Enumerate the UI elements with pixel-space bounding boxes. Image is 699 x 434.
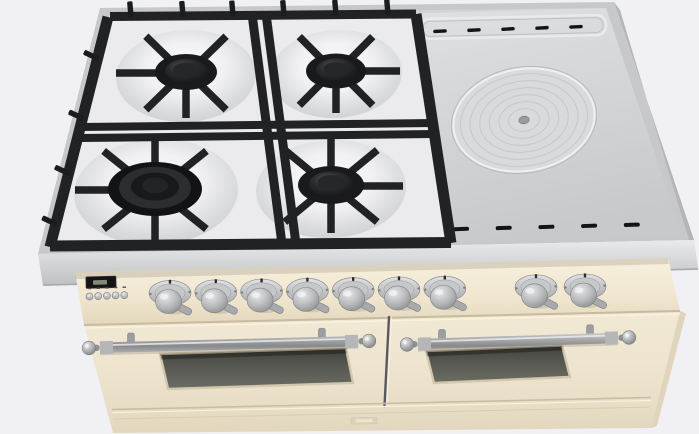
handle-ball-finial: [622, 331, 636, 345]
vent-slot: [496, 226, 512, 231]
handle-ball-finial: [82, 341, 96, 355]
right-oven-window: [426, 346, 570, 384]
oven-section: [82, 311, 686, 433]
burner-front-left: [108, 162, 202, 216]
handle-ball-finial: [400, 338, 414, 352]
vent-slot: [535, 26, 549, 30]
burner-back-right: [306, 54, 366, 89]
range-cooker-render: [0, 0, 699, 434]
vent-slot: [501, 27, 515, 31]
vent-slot: [467, 28, 481, 32]
clock-display: [86, 276, 116, 288]
brand-badge: [351, 417, 377, 424]
cooktop: [38, 0, 698, 286]
render-canvas: [0, 0, 699, 434]
vent-slot: [433, 29, 447, 33]
vent-slot: [453, 227, 469, 232]
vent-slot: [624, 223, 640, 228]
burner-section: [41, 0, 451, 249]
burner-front-right: [298, 166, 364, 204]
burner-back-left: [155, 54, 217, 90]
left-oven-window: [160, 348, 353, 389]
vent-slot: [569, 25, 583, 29]
vent-slot: [581, 224, 597, 229]
vent-slot: [538, 225, 554, 230]
handle-ball-finial: [362, 334, 376, 348]
